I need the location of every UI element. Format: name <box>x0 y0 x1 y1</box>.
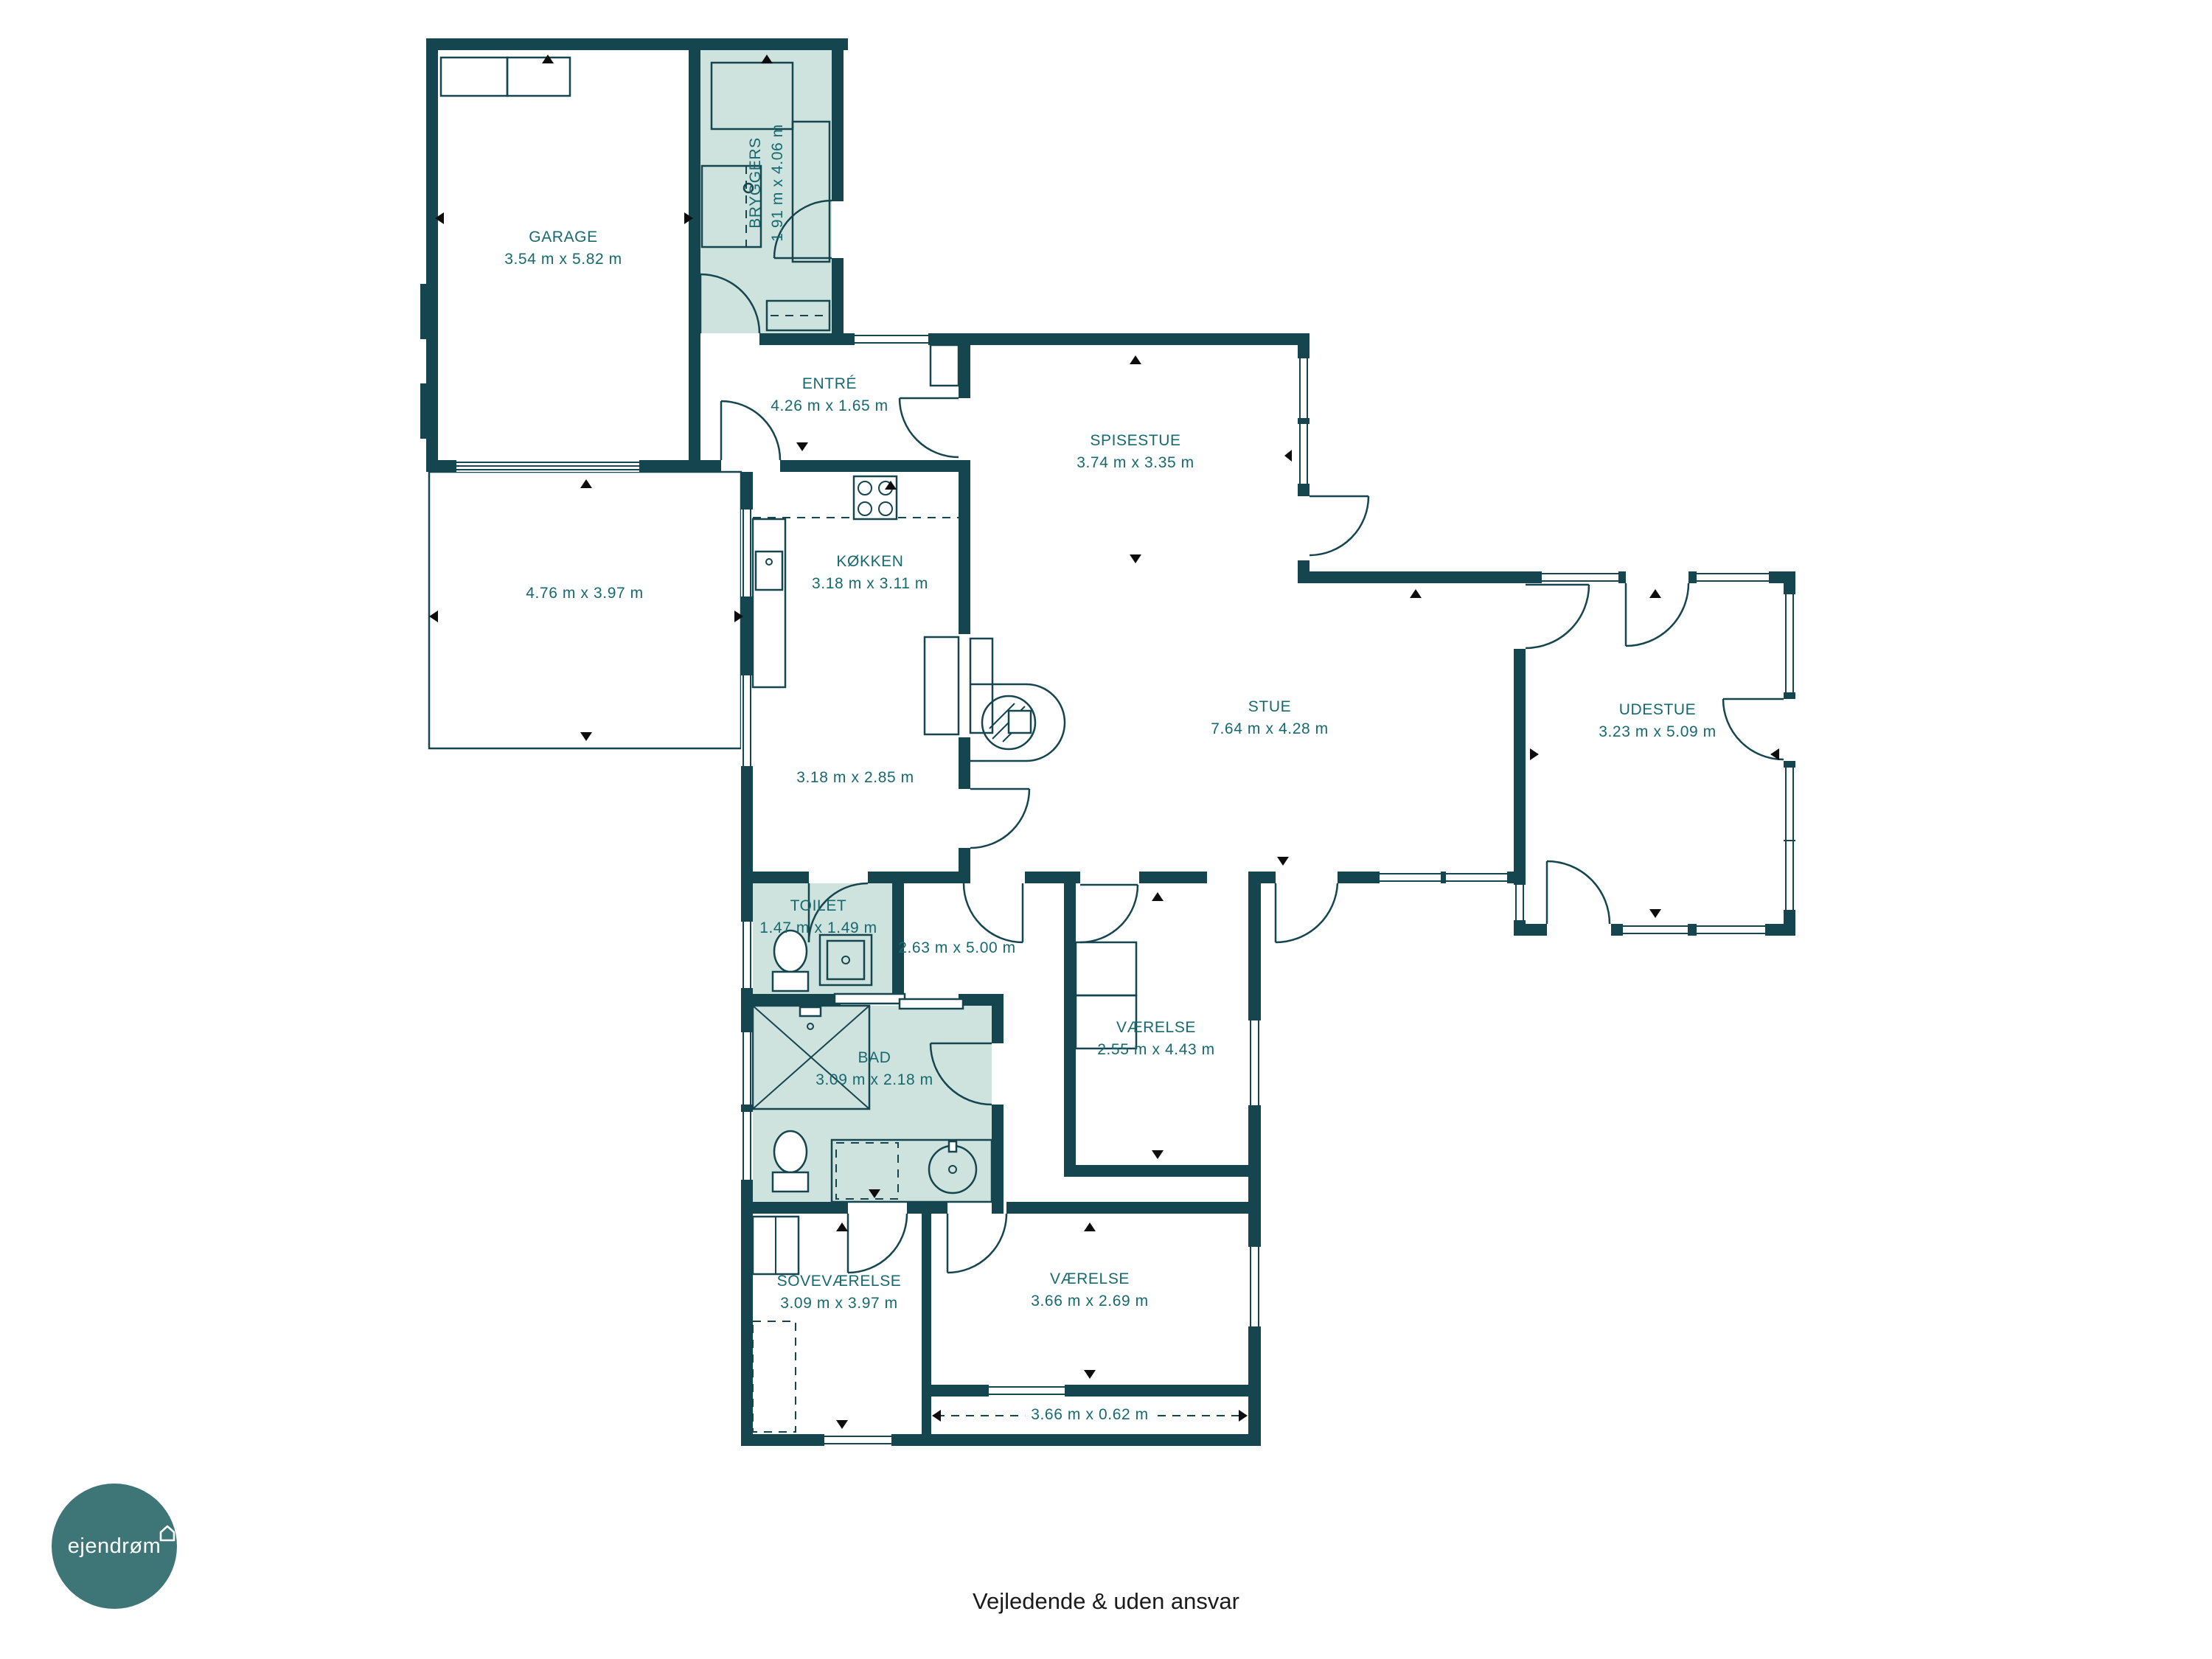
disclaimer-text: Vejledende & uden ansvar <box>973 1588 1239 1615</box>
room-label-garage: GARAGE3.54 m x 5.82 m <box>504 226 622 271</box>
room-label-spisestue: SPISESTUE3.74 m x 3.35 m <box>1077 430 1194 474</box>
room-label-bryggers: BRYGGERS1.91 m x 4.06 m <box>745 124 789 242</box>
room-label-bad: BAD3.09 m x 2.18 m <box>815 1047 933 1091</box>
brand-name: ejendrøm <box>68 1534 161 1558</box>
room-label-stue: STUE7.64 m x 4.28 m <box>1211 696 1329 740</box>
room-label-vaerelse-ost: VÆRELSE2.55 m x 4.43 m <box>1097 1017 1215 1061</box>
room-label-entre: ENTRÉ4.26 m x 1.65 m <box>771 373 888 417</box>
floorplan-page: GARAGE3.54 m x 5.82 m BRYGGERS1.91 m x 4… <box>0 0 2212 1659</box>
room-label-terrace: 4.76 m x 3.97 m <box>526 582 644 605</box>
sove-wardrobe <box>753 1321 796 1432</box>
pass-through-counter <box>970 639 992 733</box>
bad-wc <box>774 1131 807 1172</box>
room-label-kokken: KØKKEN3.18 m x 3.11 m <box>812 551 928 595</box>
walls <box>420 38 1795 1446</box>
garage-shelf <box>507 58 570 96</box>
kitchen-counter <box>753 519 785 687</box>
room-label-gang: 2.63 m x 5.00 m <box>898 937 1016 959</box>
terrace-outline <box>429 472 741 748</box>
shower-head <box>800 1007 821 1016</box>
dimension-arrows <box>429 55 1779 1429</box>
entre-closet <box>931 345 959 386</box>
kitchen-sink <box>756 552 782 590</box>
room-label-vaerelse-syd: VÆRELSE3.66 m x 2.69 m <box>1031 1268 1149 1312</box>
room-label-fordelingsgang: 3.18 m x 2.85 m <box>796 767 914 789</box>
wardrobe <box>1076 942 1136 995</box>
house-icon <box>158 1524 177 1543</box>
room-label-sovevaerelse: SOVEVÆRELSE3.09 m x 3.97 m <box>777 1270 902 1315</box>
room-label-toilet: TOILET1.47 m x 1.49 m <box>759 895 877 939</box>
garage-shelf <box>441 58 507 96</box>
room-fills <box>429 50 992 1202</box>
room-label-niche: 3.66 m x 0.62 m <box>1025 1404 1155 1426</box>
brand-logo: ejendrøm <box>52 1484 177 1609</box>
room-label-udestue: UDESTUE3.23 m x 5.09 m <box>1599 699 1717 743</box>
pass-through-counter <box>925 637 959 734</box>
